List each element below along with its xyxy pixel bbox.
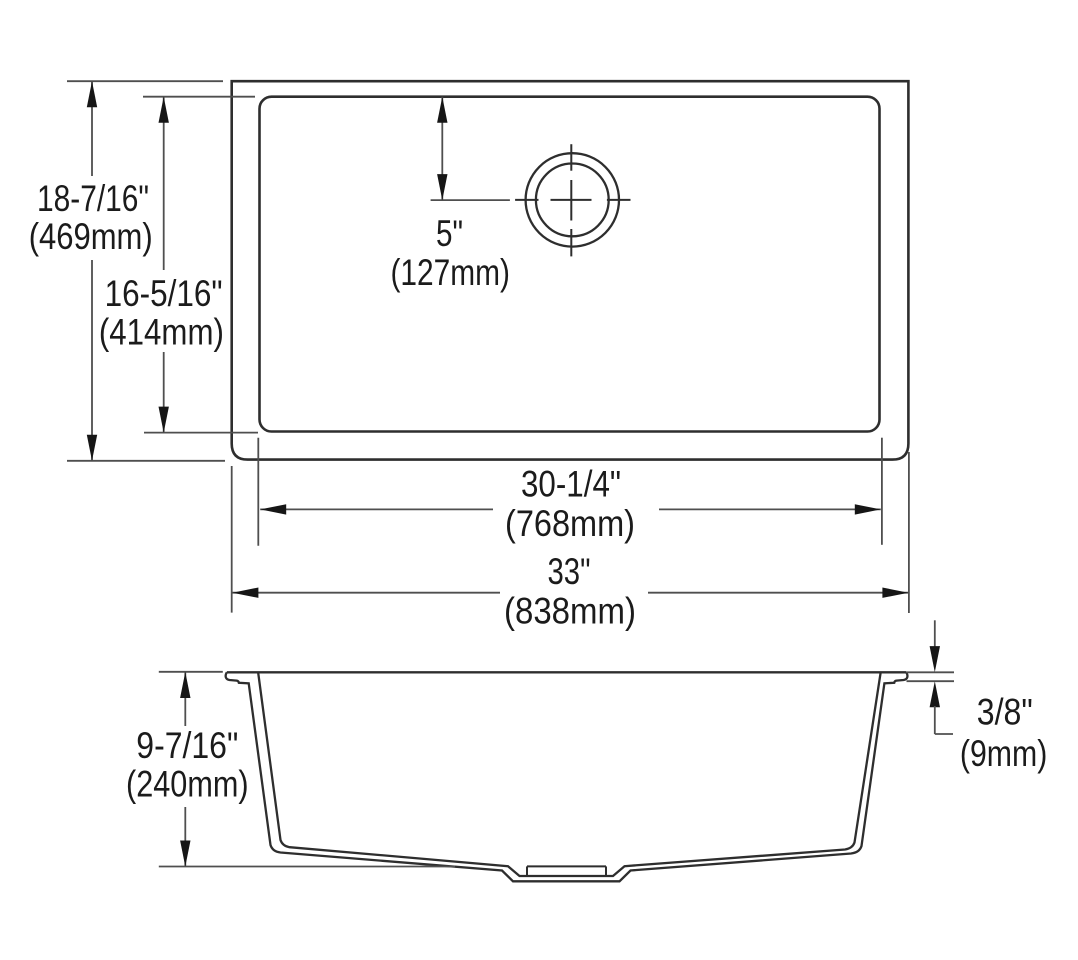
svg-text:5": 5" (436, 213, 463, 254)
svg-text:(127mm): (127mm) (390, 252, 510, 293)
svg-text:9-7/16": 9-7/16" (136, 725, 238, 766)
svg-text:16-5/16": 16-5/16" (105, 273, 223, 314)
svg-text:(469mm): (469mm) (29, 216, 153, 257)
svg-text:(838mm): (838mm) (504, 591, 636, 632)
svg-text:18-7/16": 18-7/16" (37, 178, 149, 219)
svg-text:3/8": 3/8" (977, 692, 1033, 733)
svg-text:33": 33" (548, 551, 591, 592)
svg-text:(768mm): (768mm) (505, 503, 635, 544)
svg-text:(240mm): (240mm) (126, 764, 249, 805)
svg-text:(414mm): (414mm) (99, 312, 224, 353)
svg-text:(9mm): (9mm) (960, 733, 1047, 774)
svg-text:30-1/4": 30-1/4" (521, 464, 621, 505)
